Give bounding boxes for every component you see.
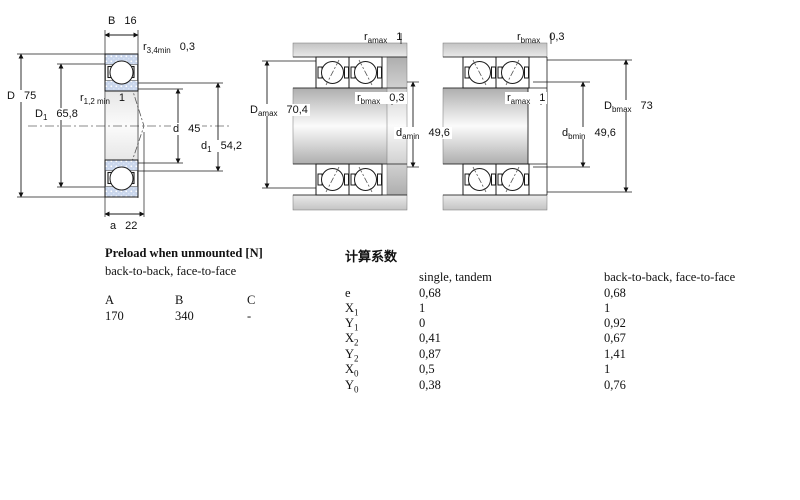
ball <box>110 167 133 190</box>
dim-label-ramax-top: ramax1 <box>364 31 402 43</box>
dim-label-rbmax-mid: rbmax0,3 <box>355 92 407 104</box>
factor-row-label: X2 <box>345 331 359 348</box>
factor-value: 0,68 <box>419 286 441 301</box>
column-header: A <box>105 293 114 308</box>
dim-label-rbmax-top: rbmax0,3 <box>517 31 565 43</box>
dim-label-B: B16 <box>108 15 137 27</box>
dim-label-a: a22 <box>110 220 137 232</box>
preload-table-title: Preload when unmounted [N] <box>105 246 263 261</box>
ball <box>110 61 133 84</box>
dim-label-Dbmax: Dbmax73 <box>602 100 655 112</box>
column-header: B <box>175 293 183 308</box>
column-header: C <box>247 293 255 308</box>
factor-row-label: Y0 <box>345 378 359 395</box>
bearing-top-section <box>105 54 138 91</box>
dim-label-dbmin: dbmin49,6 <box>560 127 618 139</box>
factor-value: 1 <box>604 362 610 377</box>
factor-value: 0,68 <box>604 286 626 301</box>
dim-label-damin: damin49,6 <box>394 127 452 139</box>
dim-label-r12: r1,2 min1 <box>80 92 125 104</box>
factor-value: 0,76 <box>604 378 626 393</box>
dim-label-r34: r3,4min0,3 <box>143 41 195 53</box>
factor-value: 0,41 <box>419 331 441 346</box>
bearing-pair-top <box>316 57 382 88</box>
bearing-pair-bottom <box>463 164 529 195</box>
factor-row-label: X0 <box>345 362 359 379</box>
factor-value: 1 <box>419 301 425 316</box>
figure-pair-back-to-back <box>262 33 419 210</box>
table-value: 340 <box>175 309 194 324</box>
factor-value: 1 <box>604 301 610 316</box>
preload-table-subtitle: back-to-back, face-to-face <box>105 264 236 279</box>
factor-value: 0 <box>419 316 425 331</box>
dim-label-Damax: Damax70,4 <box>248 104 310 116</box>
factors-table-title: 计算系数 <box>345 246 397 265</box>
figure-pair-face-to-face <box>443 33 632 210</box>
dim-label-d1: d154,2 <box>199 140 244 152</box>
dim-label-D1: D165,8 <box>33 108 80 120</box>
bearing-pair-bottom <box>316 164 382 195</box>
dim-label-ramax-mid: ramax1 <box>505 92 547 104</box>
factor-value: 0,5 <box>419 362 435 377</box>
table-value: 170 <box>105 309 124 324</box>
bearing-datasheet-page: B16 r3,4min0,3 D75 D165,8 r1,2 min1 d45 … <box>0 0 800 500</box>
dim-label-d: d45 <box>171 123 202 135</box>
factor-value: 0,92 <box>604 316 626 331</box>
column-header: back-to-back, face-to-face <box>604 270 735 285</box>
column-header: single, tandem <box>419 270 492 285</box>
factor-value: 0,87 <box>419 347 441 362</box>
table-value: - <box>247 309 251 324</box>
dim-label-D: D75 <box>5 90 38 102</box>
factor-value: 1,41 <box>604 347 626 362</box>
factor-value: 0,67 <box>604 331 626 346</box>
bearing-pair-top <box>463 57 529 88</box>
factor-value: 0,38 <box>419 378 441 393</box>
bearing-bottom-section <box>105 160 138 197</box>
